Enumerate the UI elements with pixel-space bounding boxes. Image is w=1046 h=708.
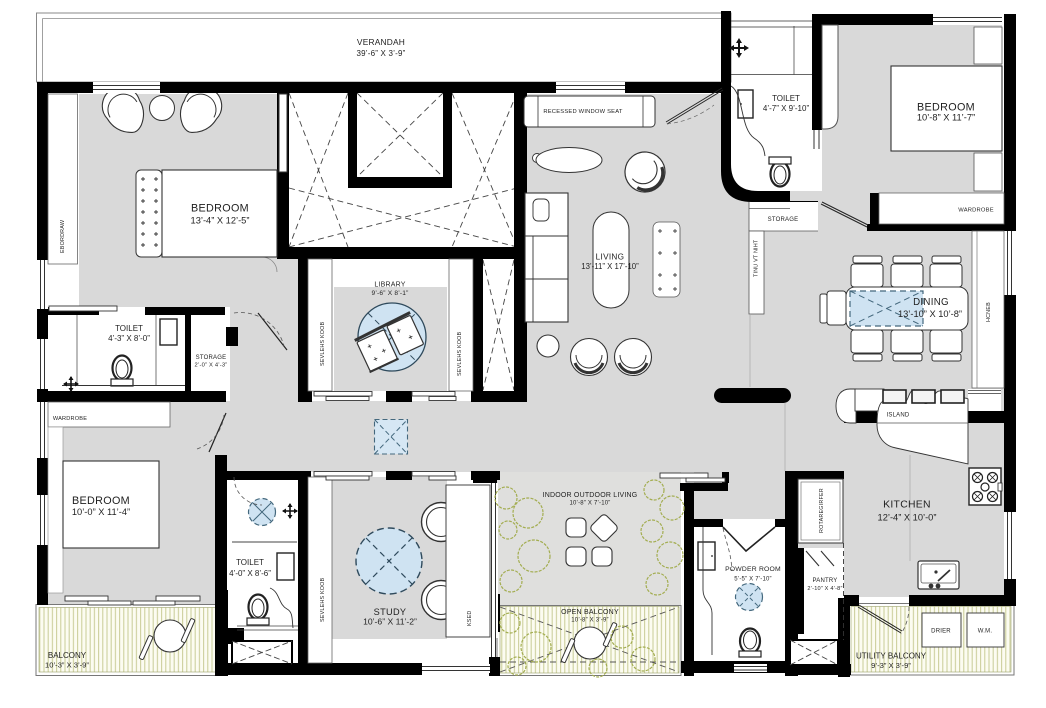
svg-text:10’-8” X 11’-7”: 10’-8” X 11’-7” xyxy=(917,113,975,123)
svg-text:EBORDRAW: EBORDRAW xyxy=(60,219,66,253)
svg-text:13’-11” X 17’-10”: 13’-11” X 17’-10” xyxy=(581,262,639,271)
svg-text:WARDROBE: WARDROBE xyxy=(53,416,87,422)
svg-text:ROTAREGIRFER: ROTAREGIRFER xyxy=(819,488,825,533)
svg-text:UTILITY BALCONY: UTILITY BALCONY xyxy=(856,652,927,661)
svg-text:DRIER: DRIER xyxy=(931,629,951,635)
svg-text:9’-3” X 3’-9”: 9’-3” X 3’-9” xyxy=(871,661,911,670)
svg-text:BEDROOM: BEDROOM xyxy=(72,495,130,507)
svg-text:DINING: DINING xyxy=(913,297,949,308)
svg-text:10’-0” X 11’-4”: 10’-0” X 11’-4” xyxy=(72,507,130,517)
svg-text:5’-5” X 7’-10”: 5’-5” X 7’-10” xyxy=(734,577,771,583)
svg-text:10’-8” X 3’-9”: 10’-8” X 3’-9” xyxy=(571,618,608,624)
svg-text:4’-3” X 8’-0”: 4’-3” X 8’-0” xyxy=(108,334,150,343)
svg-text:LIBRARY: LIBRARY xyxy=(374,282,405,289)
svg-text:STORAGE: STORAGE xyxy=(768,217,799,223)
svg-text:ISLAND: ISLAND xyxy=(887,413,910,419)
svg-text:TOILET: TOILET xyxy=(115,324,143,333)
svg-text:12’-4” X 10’-0”: 12’-4” X 10’-0” xyxy=(878,513,937,523)
svg-text:TOILET: TOILET xyxy=(236,558,264,567)
svg-text:39’-6” X 3’-9”: 39’-6” X 3’-9” xyxy=(356,49,405,58)
svg-text:PANTRY: PANTRY xyxy=(813,578,838,584)
svg-text:KSED: KSED xyxy=(467,611,473,626)
svg-text:RECESSED WINDOW SEAT: RECESSED WINDOW SEAT xyxy=(543,109,623,115)
svg-text:OPEN BALCONY: OPEN BALCONY xyxy=(561,609,619,616)
svg-text:VERANDAH: VERANDAH xyxy=(357,37,405,47)
svg-text:W.M.: W.M. xyxy=(978,629,993,635)
svg-text:10’-3” X 3’-9”: 10’-3” X 3’-9” xyxy=(45,661,89,670)
svg-text:SEVLEHS KOOB: SEVLEHS KOOB xyxy=(457,331,463,376)
svg-text:STUDY: STUDY xyxy=(374,607,407,617)
svg-text:HCNEB: HCNEB xyxy=(986,302,992,322)
svg-text:LIVING: LIVING xyxy=(596,253,625,262)
svg-text:STORAGE: STORAGE xyxy=(196,355,227,361)
svg-text:INDOOR OUTDOOR LIVING: INDOOR OUTDOOR LIVING xyxy=(543,492,638,499)
svg-text:2’-10” X 4’-8”: 2’-10” X 4’-8” xyxy=(807,586,842,592)
svg-text:TINU VT NIHT: TINU VT NIHT xyxy=(754,239,760,277)
svg-text:WARDROBE: WARDROBE xyxy=(958,208,994,214)
svg-text:2’-0” X 4’-3”: 2’-0” X 4’-3” xyxy=(195,363,228,369)
svg-text:10’-8” X 7’-10”: 10’-8” X 7’-10” xyxy=(569,501,610,507)
svg-text:BEDROOM: BEDROOM xyxy=(191,203,249,215)
svg-text:TOILET: TOILET xyxy=(772,94,800,103)
svg-text:10’-6” X 11’-2”: 10’-6” X 11’-2” xyxy=(363,617,417,627)
svg-text:13’-4” X 12’-5”: 13’-4” X 12’-5” xyxy=(191,216,250,226)
svg-text:SEVLEHS KOOB: SEVLEHS KOOB xyxy=(320,321,326,366)
svg-text:13’-10” X 10’-8”: 13’-10” X 10’-8” xyxy=(898,309,962,319)
svg-text:4’-7” X 9’-10”: 4’-7” X 9’-10” xyxy=(763,104,810,113)
svg-text:BALCONY: BALCONY xyxy=(48,651,87,660)
svg-text:9’-6” X 8’-1”: 9’-6” X 8’-1” xyxy=(371,290,408,297)
svg-text:KITCHEN: KITCHEN xyxy=(883,500,931,511)
svg-text:POWDER ROOM: POWDER ROOM xyxy=(725,566,781,573)
svg-text:SEVLEHS KOOB: SEVLEHS KOOB xyxy=(320,577,326,622)
svg-text:4’-0” X 8’-6”: 4’-0” X 8’-6” xyxy=(229,569,271,578)
